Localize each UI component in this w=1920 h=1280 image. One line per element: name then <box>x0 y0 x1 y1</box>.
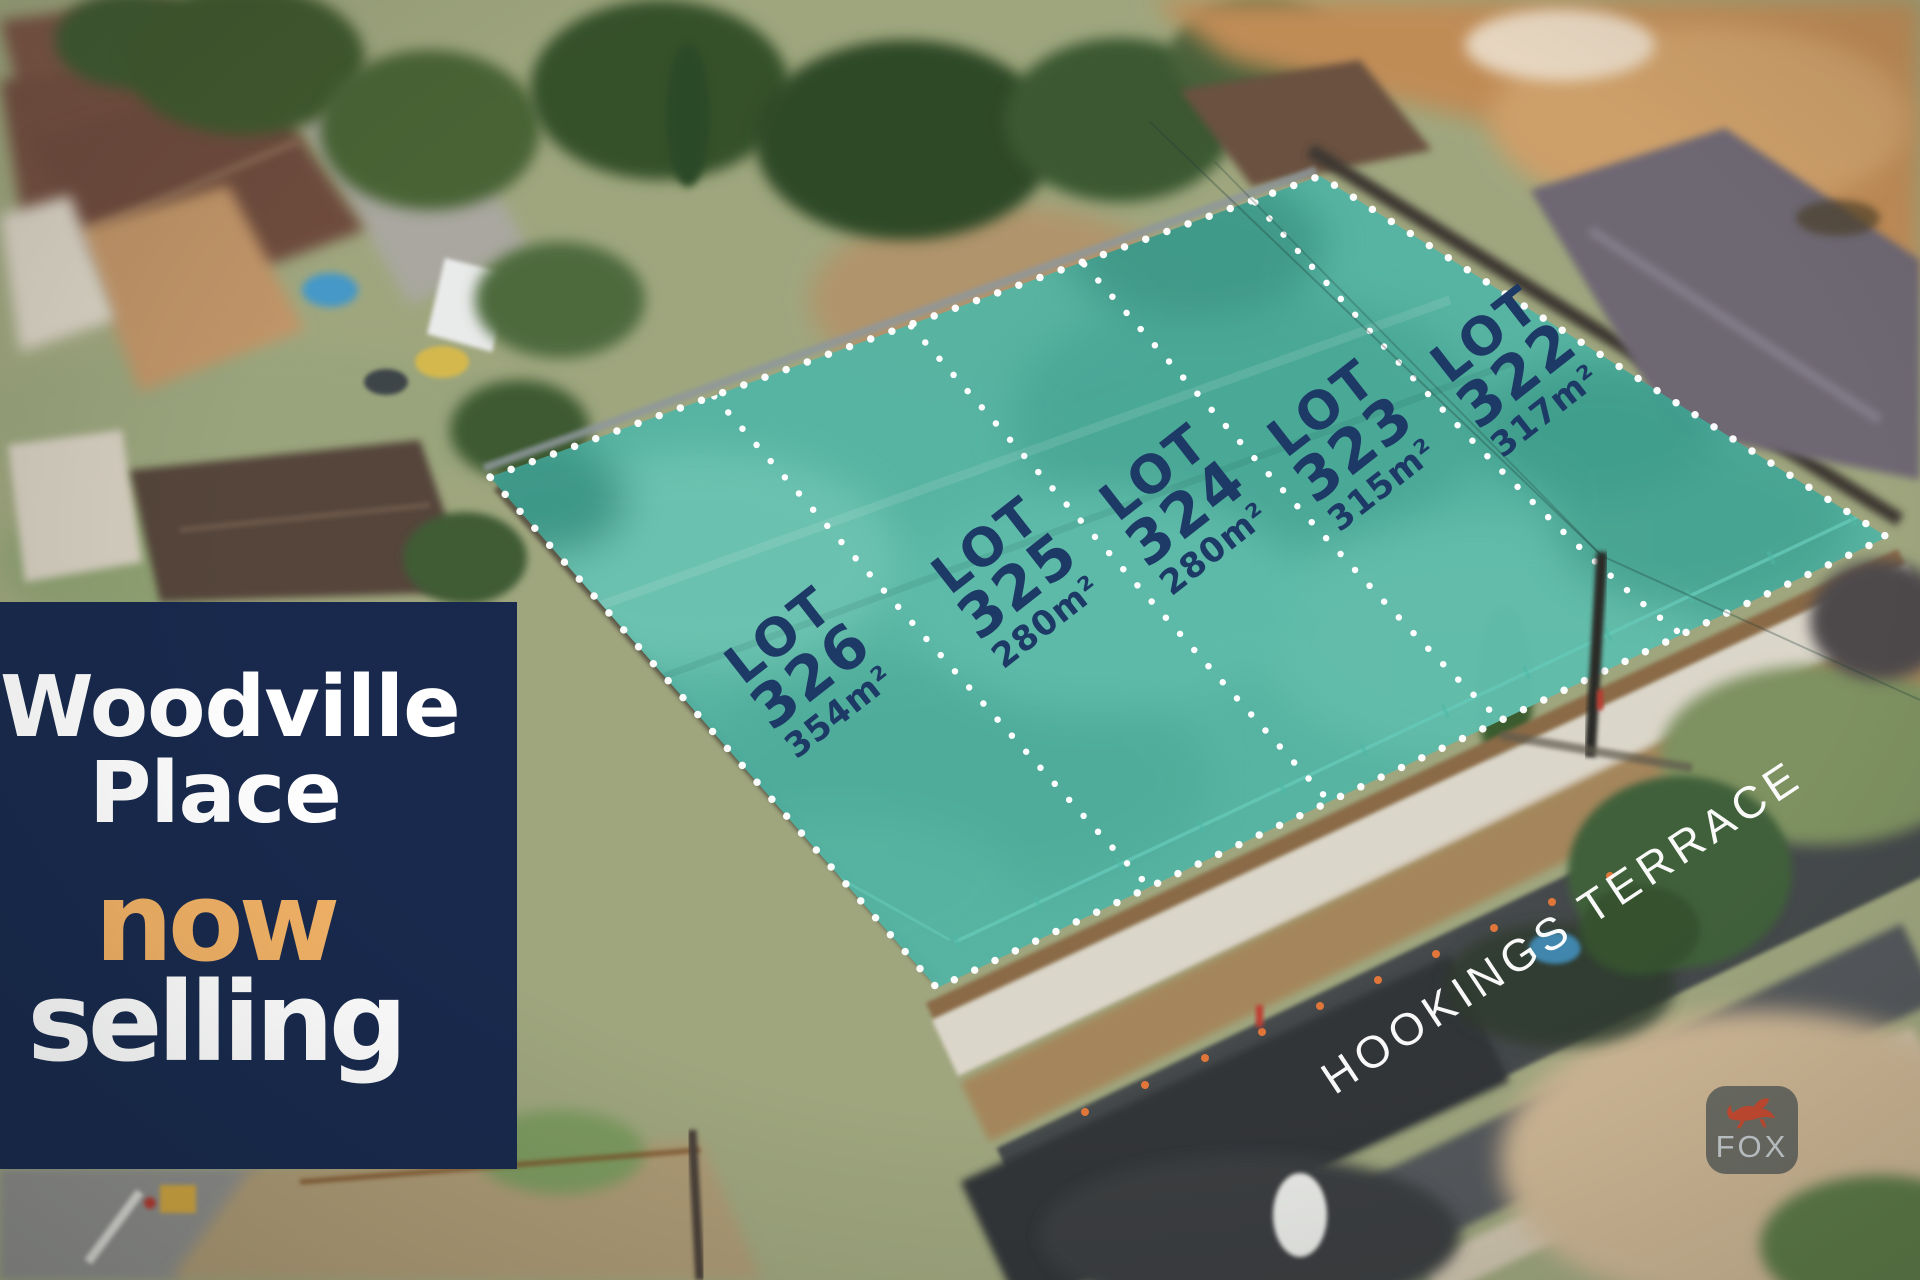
brand-name-line1: Woodville <box>0 665 430 750</box>
dirt-patch-pale <box>1465 9 1655 81</box>
tree-blob <box>475 242 645 358</box>
cone-dot <box>1374 976 1382 984</box>
fox-icon <box>1723 1095 1781 1131</box>
cone-dot <box>1316 1002 1324 1010</box>
car-dark <box>364 369 408 395</box>
cone-dot <box>1081 1108 1089 1116</box>
marker-post-red <box>1597 690 1603 710</box>
cone-dot <box>1490 924 1498 932</box>
cone-dot <box>1432 950 1440 958</box>
sign-red <box>144 1197 156 1209</box>
agency-name: FOX <box>1716 1131 1789 1163</box>
cone-dot <box>1201 1054 1209 1062</box>
agency-watermark: FOX <box>1706 1086 1798 1174</box>
car-yellow <box>415 346 469 378</box>
marker-post-red <box>1256 1005 1263 1027</box>
fox-leg <box>1759 1119 1766 1127</box>
cypress-tree <box>666 43 710 187</box>
listing-hero-image: LOT 326 354m² LOT 325 280m² LOT 324 280m… <box>0 0 1920 1280</box>
cone-dot <box>1141 1081 1149 1089</box>
promo-banner: Woodville Place now selling <box>0 602 517 1169</box>
tree-blob <box>320 50 540 210</box>
brand-name-line2: Place <box>0 751 430 836</box>
sign-yellow <box>160 1185 196 1213</box>
status-line-selling: selling <box>0 967 430 1077</box>
fox-body <box>1729 1098 1776 1120</box>
cone-dot <box>1258 1028 1266 1036</box>
tree-blob <box>403 512 527 604</box>
van-white <box>1273 1173 1327 1257</box>
roof-blob-cream <box>8 430 142 582</box>
pool-blob <box>302 273 358 307</box>
dish-shadow <box>1796 200 1880 236</box>
fox-leg <box>1737 1120 1745 1128</box>
tree-blob <box>530 0 790 180</box>
